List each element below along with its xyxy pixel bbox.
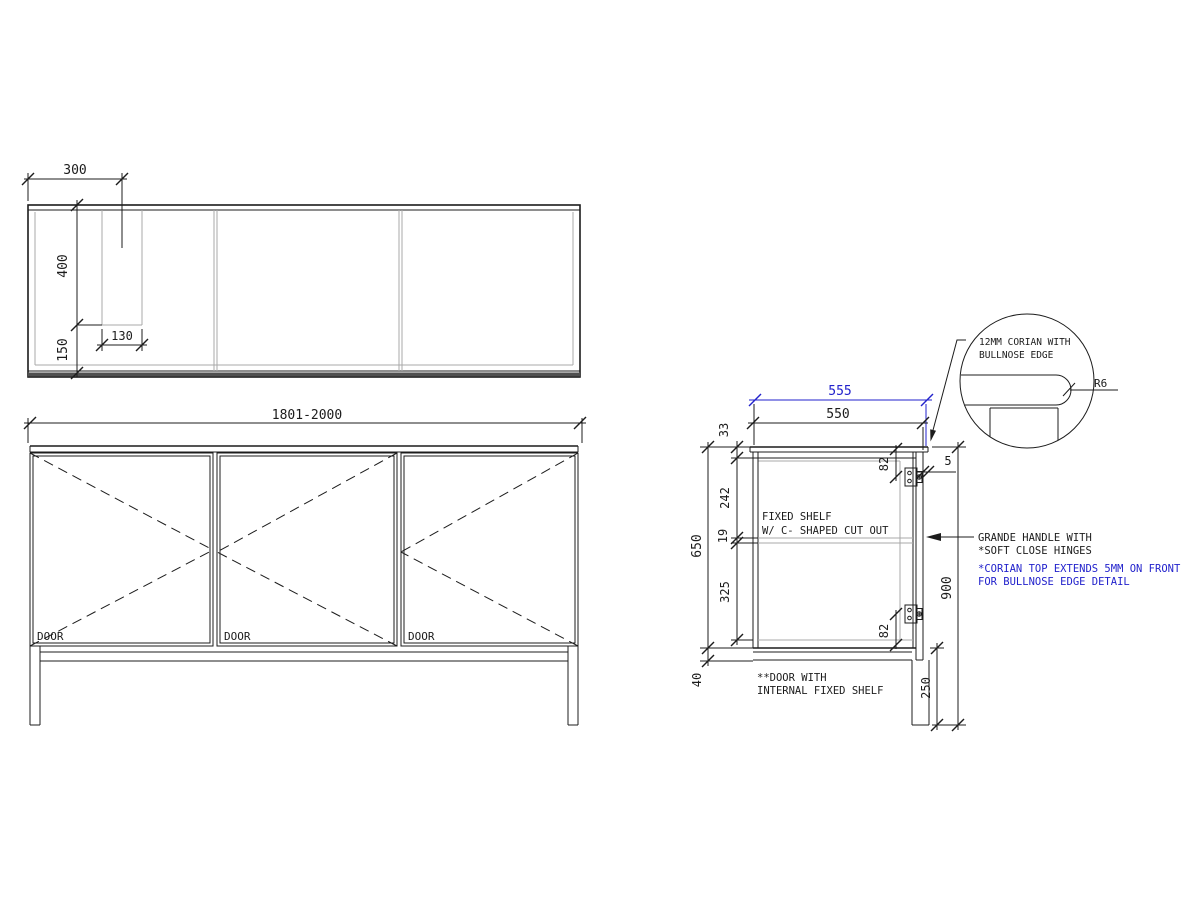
detail-label-line2: BULLNOSE EDGE xyxy=(979,350,1054,361)
section-left-dims: 33 242 19 325 650 40 xyxy=(690,423,758,687)
cad-drawing-page: 300 400 150 130 1801-2000 xyxy=(0,0,1200,900)
section-dim-550: 550 xyxy=(826,407,849,422)
plan-dim-400: 400 xyxy=(56,254,71,277)
section-right-dims: 900 250 xyxy=(919,441,966,731)
plan-dim-130-group: 130 xyxy=(96,329,148,351)
plan-dim-130: 130 xyxy=(111,329,133,343)
plan-dim-150: 150 xyxy=(56,338,71,361)
front-left-leg xyxy=(30,646,40,725)
door2-swing-lines xyxy=(217,453,397,646)
front-countertop xyxy=(30,446,578,452)
fixed-shelf-label-line1: FIXED SHELF xyxy=(762,511,832,523)
front-base xyxy=(30,646,578,725)
section-bottom-rail xyxy=(753,652,912,660)
door1-swing-lines xyxy=(30,453,213,646)
front-dim-width-group: 1801-2000 xyxy=(24,408,586,443)
section-dim-325: 325 xyxy=(718,581,732,603)
handle-leader-arrow xyxy=(926,533,941,541)
section-dim-5: 5 xyxy=(944,454,951,468)
plan-dim-300: 300 xyxy=(63,163,86,178)
front-doors: DOOR DOOR DOOR xyxy=(30,453,578,646)
front-right-leg xyxy=(568,646,578,725)
section-view: 555 550 33 242 19 325 650 40 900 xyxy=(690,384,1181,731)
door-note-line2: INTERNAL FIXED SHELF xyxy=(757,685,883,697)
handle-label-line1: GRANDE HANDLE WITH xyxy=(978,532,1092,544)
detail-circle xyxy=(960,314,1094,448)
plan-outline xyxy=(28,205,580,377)
door1-label: DOOR xyxy=(37,630,64,643)
section-dim-242: 242 xyxy=(718,487,732,509)
front-dim-width: 1801-2000 xyxy=(272,408,342,423)
cad-drawing-canvas: 300 400 150 130 1801-2000 xyxy=(0,0,1200,900)
section-fixed-shelf xyxy=(758,538,913,543)
corian-note-line2: FOR BULLNOSE EDGE DETAIL xyxy=(978,576,1130,588)
section-dim-650: 650 xyxy=(690,534,705,557)
plan-dim-400-150-group: 400 150 xyxy=(56,199,102,379)
door3-swing-lines xyxy=(401,453,578,646)
detail-view: 12MM CORIAN WITH BULLNOSE EDGE R6 xyxy=(930,314,1118,448)
door-note-line1: **DOOR WITH xyxy=(757,672,827,684)
detail-radius-dim: R6 xyxy=(1063,377,1118,396)
detail-dim-r6: R6 xyxy=(1094,377,1107,390)
section-back-panel xyxy=(753,452,758,648)
section-dim-33: 33 xyxy=(717,423,731,437)
front-elevation-view: 1801-2000 DOOR DOOR DOOR xyxy=(24,408,586,725)
section-labels: FIXED SHELF W/ C- SHAPED CUT OUT GRANDE … xyxy=(757,511,1181,697)
section-dim-40: 40 xyxy=(690,673,704,687)
section-dim-250: 250 xyxy=(919,677,933,699)
fixed-shelf-label-line2: W/ C- SHAPED CUT OUT xyxy=(762,525,889,537)
plan-view: 300 400 150 130 xyxy=(22,163,580,379)
handle-label-line2: *SOFT CLOSE HINGES xyxy=(978,545,1092,557)
section-dim-82-bottom: 82 xyxy=(877,624,891,638)
detail-label-line1: 12MM CORIAN WITH xyxy=(979,337,1071,348)
corian-note-line1: *CORIAN TOP EXTENDS 5MM ON FRONT xyxy=(978,563,1181,575)
section-dim-555: 555 xyxy=(828,384,851,399)
detail-bullnose-profile xyxy=(961,375,1071,440)
plan-dividers xyxy=(214,210,402,371)
section-dim-900: 900 xyxy=(940,576,955,599)
section-dim-19: 19 xyxy=(716,529,730,543)
section-dim-82-top: 82 xyxy=(877,457,891,471)
door2-label: DOOR xyxy=(224,630,251,643)
door3-label: DOOR xyxy=(408,630,435,643)
